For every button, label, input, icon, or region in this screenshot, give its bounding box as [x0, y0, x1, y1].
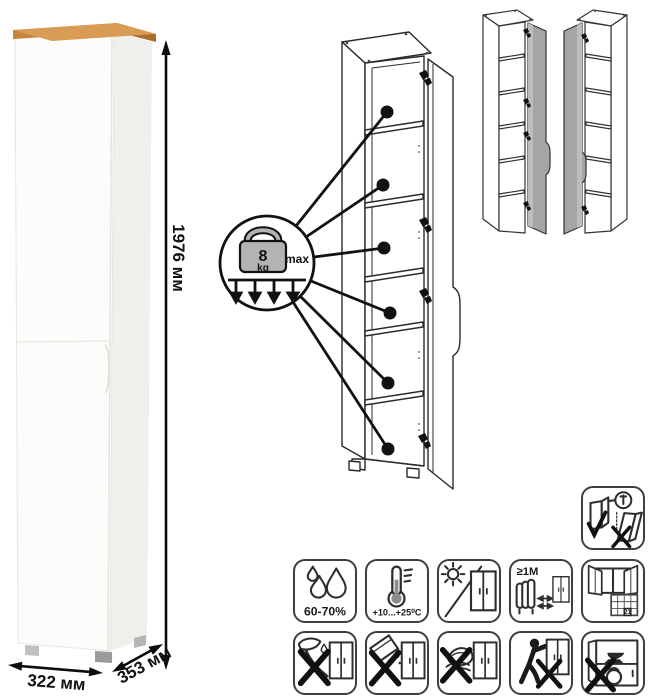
anti-tip-wall-mount-icon	[581, 486, 645, 550]
no-sharp-tools-icon	[293, 631, 357, 695]
door-seam	[16, 341, 111, 342]
open-window-icon	[589, 566, 638, 595]
ventilate-room-icon: 21	[581, 559, 645, 623]
keep-distance-from-heat-icon: ≥1М	[509, 559, 573, 623]
height-dimension-label: 1976 мм	[169, 224, 188, 292]
heat-distance-label: ≥1М	[517, 566, 539, 578]
radiator-icon	[517, 580, 535, 614]
product-photo: 1976 мм 322 мм 353 мм	[0, 0, 200, 700]
temperature-label: +10...+25⁰C	[372, 607, 421, 617]
humidity-icon: 60-70%	[293, 559, 357, 623]
no-overloading-icon	[581, 631, 645, 695]
cabinet-side-panel	[110, 32, 152, 651]
weight-unit: kg	[257, 263, 269, 274]
calendar-icon: 21	[611, 595, 637, 616]
weight-qualifier: max	[285, 252, 309, 266]
max-load-callout: 8 kg max	[220, 216, 314, 310]
shelf-load-diagram: 8 kg max	[205, 15, 485, 515]
spacing-arrows	[538, 596, 552, 608]
no-abrasive-cleaners-icon	[365, 631, 429, 695]
cabinet-line-drawing	[342, 32, 460, 489]
product-spec-sheet: 1976 мм 322 мм 353 мм	[0, 0, 648, 700]
temperature-range-icon: +10...+25⁰C	[365, 559, 429, 623]
no-wet-cleaning-icon	[437, 631, 501, 695]
height-dimension-arrow	[162, 40, 171, 670]
calendar-day-label: 21	[624, 609, 631, 616]
no-dragging-icon	[509, 631, 573, 695]
variant-door-left	[564, 10, 627, 234]
door-variants	[472, 3, 648, 245]
humidity-label: 60-70%	[304, 604, 346, 618]
width-dimension-label: 322 мм	[27, 671, 87, 695]
variant-door-right	[483, 10, 550, 234]
person-pushing-icon	[521, 639, 545, 682]
avoid-direct-sunlight-icon	[437, 559, 501, 623]
sun-icon	[448, 569, 458, 579]
